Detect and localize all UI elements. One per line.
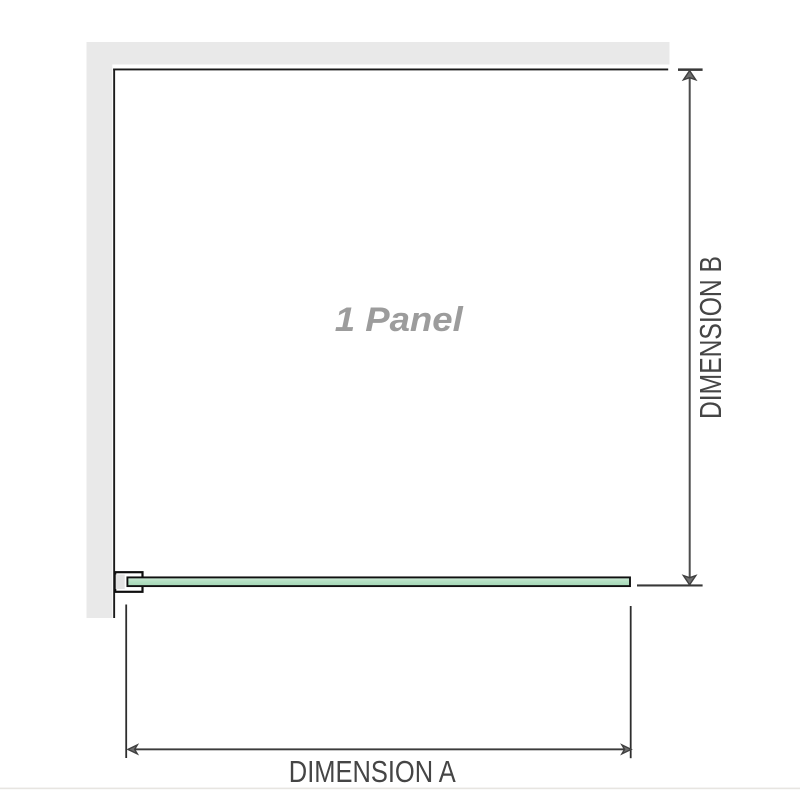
svg-text:1 Panel: 1 Panel: [335, 301, 464, 339]
svg-text:DIMENSION B: DIMENSION B: [693, 256, 728, 419]
svg-text:DIMENSION A: DIMENSION A: [289, 754, 456, 789]
